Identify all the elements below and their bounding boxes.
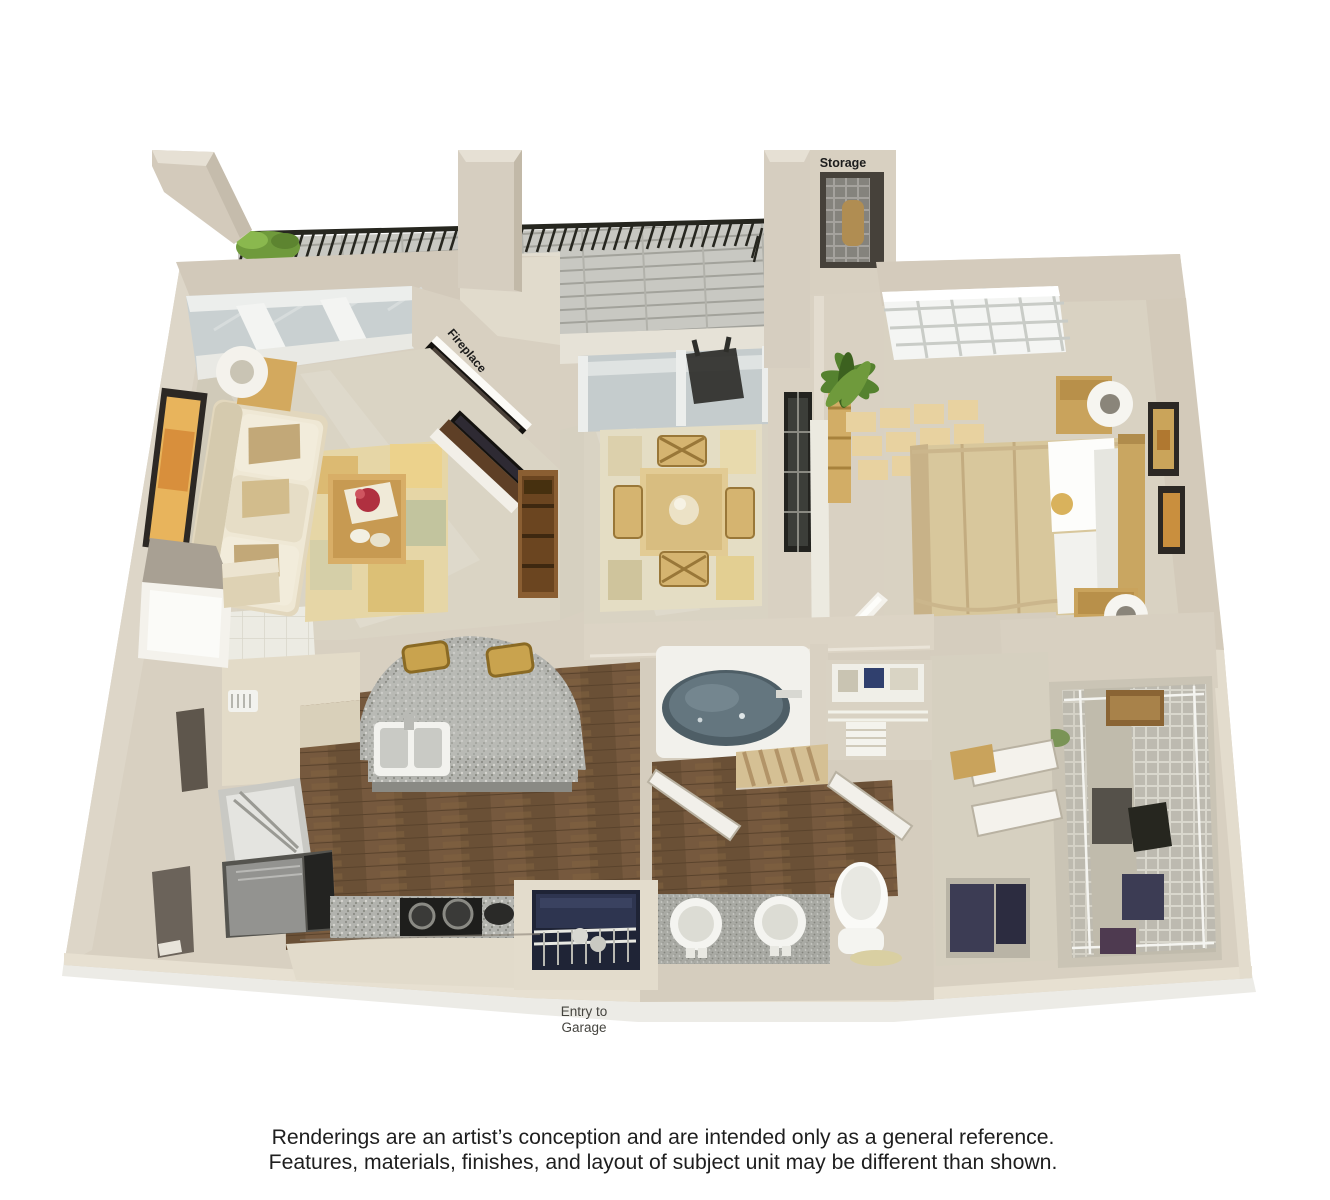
svg-text:Entry to: Entry to bbox=[561, 1004, 608, 1019]
svg-text:Features, materials, finishes,: Features, materials, finishes, and layou… bbox=[269, 1151, 1058, 1174]
svg-text:Renderings are an artist’s con: Renderings are an artist’s conception an… bbox=[272, 1126, 1055, 1149]
svg-text:Storage: Storage bbox=[820, 156, 867, 170]
svg-text:Garage: Garage bbox=[561, 1020, 606, 1035]
